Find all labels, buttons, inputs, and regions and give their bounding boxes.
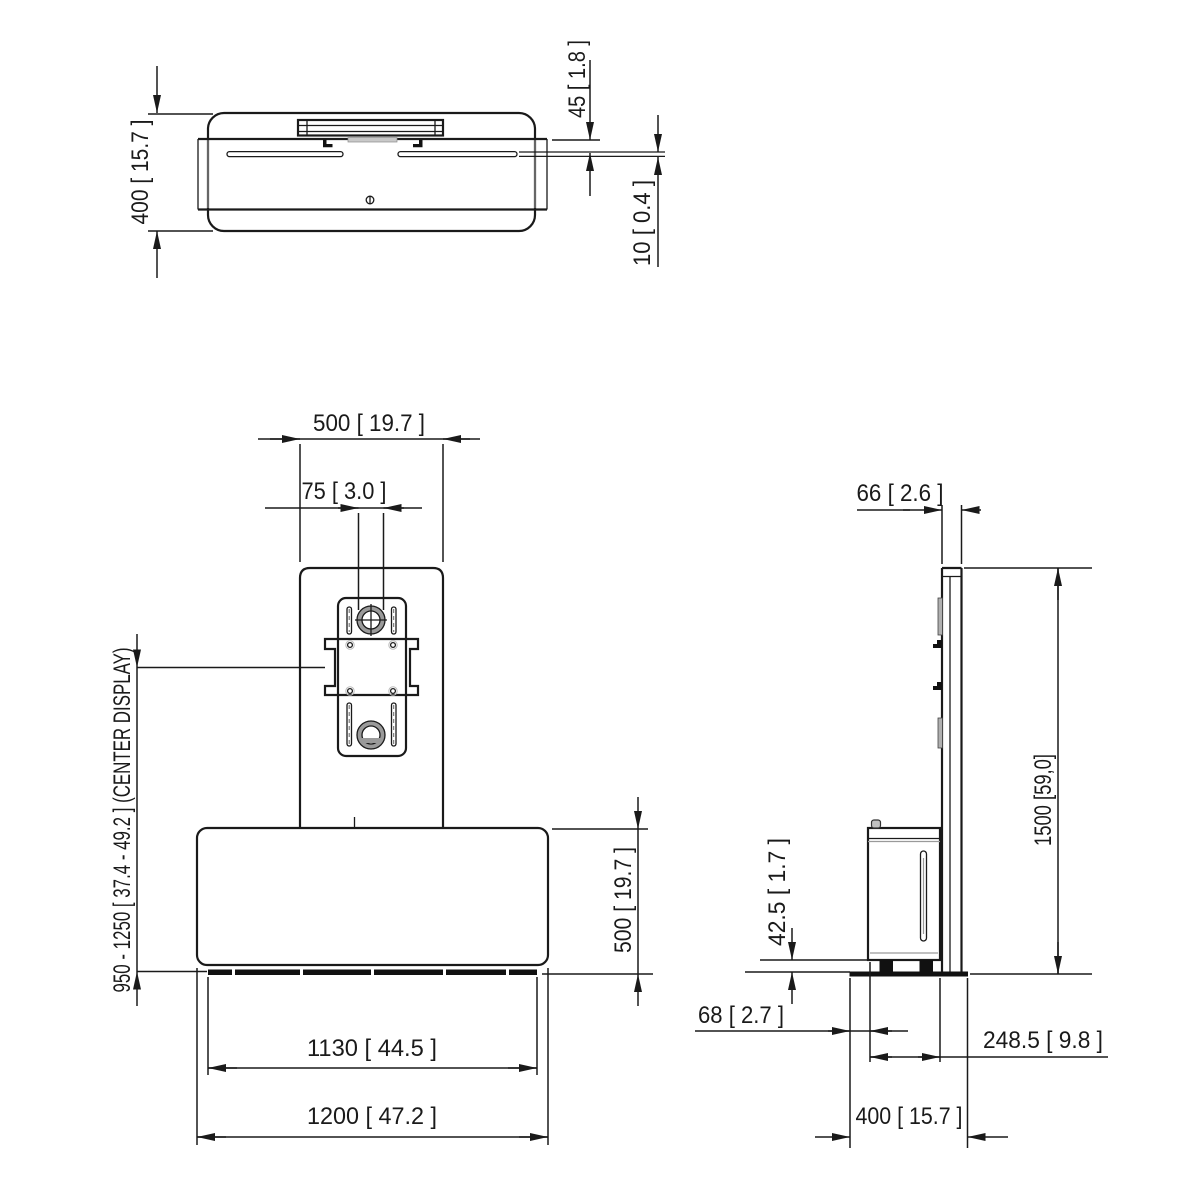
dim-side-rear-offset-label: 68 [ 2.7 ] bbox=[698, 1002, 784, 1029]
front-view: 500 [ 19.7 ] 75 [ 3.0 ] 950 - 1250 [ 37.… bbox=[109, 410, 653, 1145]
dim-front-display-center: 950 - 1250 [ 37.4 - 49.2 ] (CENTER DISPL… bbox=[109, 634, 325, 1006]
dim-front-cabinet-height: 500 [ 19.7 ] bbox=[542, 797, 653, 1006]
dim-side-total-height: 1500 [59,0] bbox=[964, 568, 1092, 974]
top-view-right-slot bbox=[398, 152, 517, 157]
dim-side-cabinet-depth: 248.5 [ 9.8 ] bbox=[870, 978, 1108, 1062]
side-hook-lower bbox=[933, 682, 942, 690]
dim-front-grommet: 75 [ 3.0 ] bbox=[265, 478, 422, 610]
top-view-spacer-strip bbox=[348, 138, 397, 143]
dim-side-column-depth: 66 [ 2.6 ] bbox=[857, 480, 982, 564]
dim-front-cabinet-height-label: 500 [ 19.7 ] bbox=[610, 847, 637, 953]
dim-front-total-width-label: 1200 [ 47.2 ] bbox=[307, 1103, 437, 1130]
dim-top-panel-offset-label: 45 [ 1.8 ] bbox=[564, 40, 591, 118]
dim-side-base-depth: 400 [ 15.7 ] bbox=[815, 978, 1008, 1148]
dim-side-base-depth-label: 400 [ 15.7 ] bbox=[856, 1103, 963, 1130]
dim-top-panel-offset: 45 [ 1.8 ] bbox=[552, 40, 600, 196]
dim-front-grommet-label: 75 [ 3.0 ] bbox=[302, 478, 387, 505]
front-crossbar-screws bbox=[346, 641, 397, 695]
dim-front-column-width-label: 500 [ 19.7 ] bbox=[313, 410, 425, 437]
dim-top-depth: 400 [ 15.7 ] bbox=[127, 66, 213, 278]
top-view-baseplate-outline bbox=[208, 113, 535, 231]
dim-side-foot-height-label: 42.5 [ 1.7 ] bbox=[764, 838, 791, 946]
dim-front-base-width-label: 1130 [ 44.5 ] bbox=[307, 1035, 437, 1062]
dim-side-total-height-label: 1500 [59,0] bbox=[1030, 754, 1057, 846]
dim-top-depth-label: 400 [ 15.7 ] bbox=[127, 120, 154, 225]
top-view-column-bracket-lines bbox=[298, 120, 443, 136]
side-cabinet-knob bbox=[872, 820, 881, 828]
dim-side-rear-offset: 68 [ 2.7 ] bbox=[695, 962, 908, 1062]
front-bottom-grommet-clamp bbox=[361, 738, 381, 743]
side-hook-upper bbox=[933, 640, 942, 648]
side-cabinet-outline bbox=[868, 828, 940, 960]
dim-top-depth-ext bbox=[148, 114, 213, 231]
dim-side-column-depth-label: 66 [ 2.6 ] bbox=[857, 480, 944, 507]
top-view-left-hook bbox=[323, 140, 333, 148]
side-baseplate bbox=[850, 972, 969, 977]
top-view-column-bracket bbox=[298, 120, 443, 136]
top-view-cabinet-sides bbox=[198, 139, 547, 210]
side-mount-pad-lower bbox=[938, 718, 943, 748]
dim-side-cabinet-depth-label: 248.5 [ 9.8 ] bbox=[983, 1027, 1103, 1054]
front-bottom-grommet bbox=[357, 721, 385, 749]
top-view-hidden-plate-edges bbox=[208, 140, 535, 208]
top-view-left-slot bbox=[227, 152, 343, 157]
dim-front-display-center-label: 950 - 1250 [ 37.4 - 49.2 ] (CENTER DISPL… bbox=[109, 648, 136, 993]
technical-drawing-page: 400 [ 15.7 ] 45 [ 1.8 ] 10 [ 0.4 ] bbox=[0, 0, 1200, 1200]
side-view: 66 [ 2.6 ] 1500 [59,0] 42.5 [ 1.7 ] 68 [… bbox=[695, 480, 1108, 1148]
dimension-drawing: 400 [ 15.7 ] 45 [ 1.8 ] 10 [ 0.4 ] bbox=[0, 0, 1200, 1200]
side-foot-left bbox=[880, 960, 894, 972]
front-top-grommet bbox=[355, 604, 387, 636]
dim-side-foot-height: 42.5 [ 1.7 ] bbox=[745, 838, 872, 1004]
side-column-outline bbox=[942, 568, 962, 972]
dim-top-panel-thickness: 10 [ 0.4 ] bbox=[629, 115, 658, 267]
top-view-panel-extension-lines bbox=[519, 152, 665, 156]
dim-top-panel-thickness-label: 10 [ 0.4 ] bbox=[629, 180, 656, 266]
side-column-inner-lines bbox=[942, 577, 962, 973]
top-view-cabinet-edges bbox=[198, 139, 547, 210]
front-cabinet-outline bbox=[197, 828, 548, 965]
dim-front-base-width: 1130 [ 44.5 ] bbox=[208, 977, 537, 1075]
side-mount-pad-upper bbox=[938, 598, 943, 635]
side-foot-right bbox=[920, 960, 934, 972]
top-view-right-hook bbox=[413, 140, 423, 148]
top-view: 400 [ 15.7 ] 45 [ 1.8 ] 10 [ 0.4 ] bbox=[127, 40, 665, 278]
